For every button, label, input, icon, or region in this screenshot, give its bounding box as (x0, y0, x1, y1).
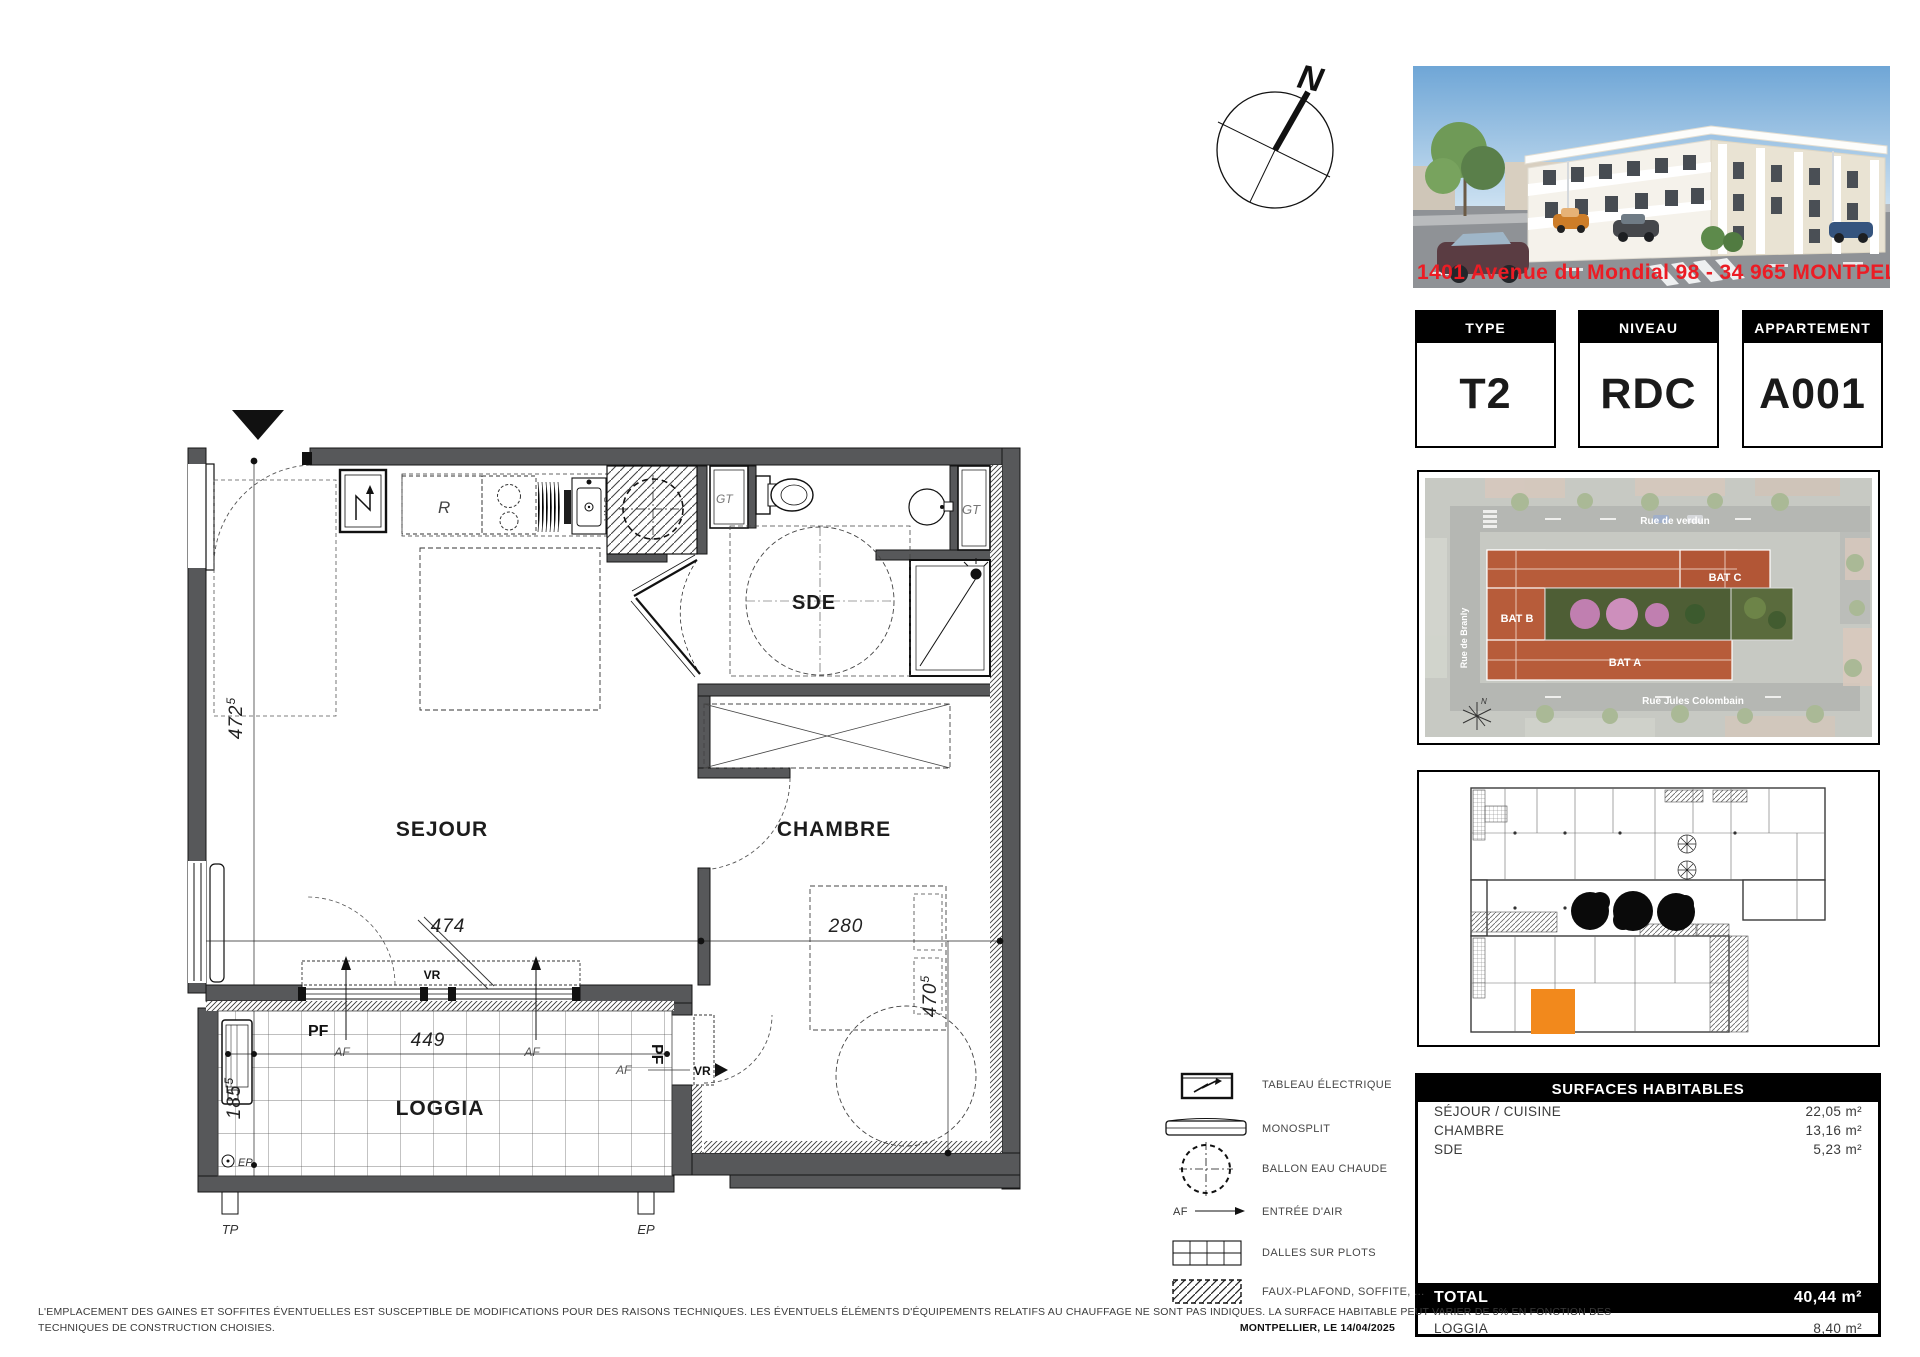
room-label-sde: SDE (792, 592, 836, 614)
kitchen-island-dashed (420, 548, 600, 710)
building-render-art (1413, 66, 1890, 288)
dim-chambre-height-sup: 5 (918, 975, 932, 983)
type-box-value: T2 (1417, 343, 1554, 446)
gt-label: GT (962, 502, 981, 517)
surfaces-title: SURFACES HABITABLES (1418, 1076, 1878, 1102)
legend-item-label: TABLEAU ÉLECTRIQUE (1262, 1079, 1392, 1091)
vr-label: VR (694, 1064, 711, 1078)
entree-air-arrow-icon (1193, 1205, 1245, 1217)
dim-chambre-width: 280 (828, 916, 864, 937)
af-label: AF (333, 1045, 350, 1059)
bat-a-label: BAT A (1609, 657, 1641, 669)
row-label: CHAMBRE (1434, 1121, 1504, 1140)
faux-plafond-icon (1171, 1278, 1243, 1305)
table-row: CHAMBRE 13,16 m² (1418, 1121, 1878, 1140)
toilet (756, 476, 813, 514)
appartement-box-header: APPARTEMENT (1744, 312, 1881, 343)
loggia-row: LOGGIA 8,40 m² (1418, 1319, 1878, 1338)
radiator (210, 864, 224, 982)
electrical-panel-icon (340, 470, 386, 532)
surfaces-table: SURFACES HABITABLES SÉJOUR / CUISINE 22,… (1415, 1073, 1881, 1337)
ballon-eau-chaude-icon (1179, 1142, 1233, 1196)
building-render-photo: 1401 Avenue du Mondial 98 - 34 965 MONTP… (1413, 66, 1890, 288)
legend-item-label: DALLES SUR PLOTS (1262, 1247, 1376, 1259)
tableau-electrique-icon (1180, 1071, 1234, 1101)
row-label: SDE (1434, 1140, 1463, 1159)
appartement-box-value: A001 (1744, 343, 1881, 446)
street-left-label: Rue de Branly (1459, 608, 1469, 669)
room-label-sejour: SEJOUR (396, 818, 488, 841)
legend-item-label: MONOSPLIT (1262, 1123, 1330, 1135)
legend-item-label: ENTRÉE D'AIR (1262, 1206, 1343, 1218)
project-address: 1401 Avenue du Mondial 98 - 34 965 MONTP… (1417, 261, 1887, 285)
entrance-arrow-icon (232, 410, 284, 440)
bat-c-label: BAT C (1709, 572, 1742, 584)
kitchen: R VMC (214, 466, 697, 716)
dim-chambre-height: 470 (920, 982, 941, 1017)
total-label: TOTAL (1434, 1289, 1488, 1307)
type-box-header: TYPE (1417, 312, 1554, 343)
disclaimer-line1: L'EMPLACEMENT DES GAINES ET SOFFITES ÉVE… (38, 1306, 1611, 1318)
dalles-sur-plots-icon (1172, 1240, 1242, 1266)
disclaimer-line2: TECHNIQUES DE CONSTRUCTION CHOISIES. (38, 1322, 275, 1334)
niveau-box-value: RDC (1580, 343, 1717, 446)
pf-label: PF (308, 1023, 329, 1040)
site-compass-n: N (1481, 697, 1487, 706)
dim-loggia-width: 449 (411, 1030, 446, 1051)
monosplit-icon (1164, 1115, 1248, 1139)
legend-item-label: FAUX-PLAFOND, SOFFITE, ... (1262, 1286, 1425, 1298)
svg-text:4725: 4725 (224, 697, 247, 739)
appartement-box: APPARTEMENT A001 (1742, 310, 1883, 448)
bat-b-label: BAT B (1501, 613, 1534, 625)
legend-item-label: BALLON EAU CHAUDE (1262, 1163, 1387, 1175)
document-date: MONTPELLIER, LE 14/04/2025 (1000, 1322, 1395, 1334)
row-value: 5,23 m² (1813, 1140, 1862, 1159)
dim-left-sup: 5 (224, 697, 238, 705)
table-row: SÉJOUR / CUISINE 22,05 m² (1418, 1102, 1878, 1121)
fridge-label: R (438, 498, 450, 517)
niveau-box-header: NIVEAU (1580, 312, 1717, 343)
type-box: TYPE T2 (1415, 310, 1556, 448)
dim-sejour-width: 474 (431, 916, 466, 937)
loggia-label: LOGGIA (1434, 1319, 1488, 1338)
room-label-loggia: LOGGIA (396, 1097, 485, 1120)
tp-label: TP (222, 1222, 239, 1237)
af-label: AF (523, 1045, 540, 1059)
highlighted-unit-a001 (1531, 989, 1575, 1034)
compass-n-label: N (1294, 58, 1327, 101)
washbasin (909, 489, 953, 525)
niveau-box: NIVEAU RDC (1578, 310, 1719, 448)
vr-label: VR (424, 968, 441, 982)
bay-window: VR (298, 897, 580, 1001)
gt-label: GT (716, 492, 734, 506)
shower (910, 558, 990, 676)
ep-label: EP (238, 1157, 253, 1169)
street-bottom-label: Rue Jules Colombain (1642, 696, 1744, 707)
north-compass-icon: N (1200, 45, 1350, 220)
entry-zone-dashed (214, 480, 336, 716)
dim-loggia-height-sup: 5 (222, 1077, 236, 1085)
site-plan-art: Rue de verdun BAT C BAT B BAT A Rue Jule… (1425, 478, 1872, 737)
ep-label: EP (637, 1222, 655, 1237)
dim-loggia-height: 185 (224, 1084, 245, 1119)
drainer-lines (538, 482, 560, 532)
row-label: SÉJOUR / CUISINE (1434, 1102, 1561, 1121)
sde-door (631, 555, 700, 677)
af-prefix: AF (1173, 1206, 1188, 1218)
dim-left: 472 (226, 704, 247, 739)
legend: TABLEAU ÉLECTRIQUE MONOSPLIT BALLON EAU … (1155, 1065, 1415, 1345)
svg-text:4705: 4705 (918, 975, 941, 1017)
apartment-floor-plan: R VMC GT (170, 408, 1090, 1288)
floorplan-sheet: { "compass": { "label": "N" }, "photo": … (0, 0, 1920, 1357)
row-value: 22,05 m² (1806, 1102, 1862, 1121)
key-plan-panel (1417, 770, 1880, 1047)
entry-door (206, 452, 312, 570)
key-plan-trees (1571, 891, 1695, 931)
street-top-label: Rue de verdun (1640, 516, 1709, 527)
row-value: 13,16 m² (1806, 1121, 1862, 1140)
loggia-value: 8,40 m² (1813, 1319, 1862, 1338)
table-row: SDE 5,23 m² (1418, 1140, 1878, 1159)
total-value: 40,44 m² (1794, 1289, 1862, 1307)
room-label-chambre: CHAMBRE (777, 818, 891, 841)
key-plan-art (1425, 778, 1872, 1039)
site-plan-panel: Rue de verdun BAT C BAT B BAT A Rue Jule… (1417, 470, 1880, 745)
